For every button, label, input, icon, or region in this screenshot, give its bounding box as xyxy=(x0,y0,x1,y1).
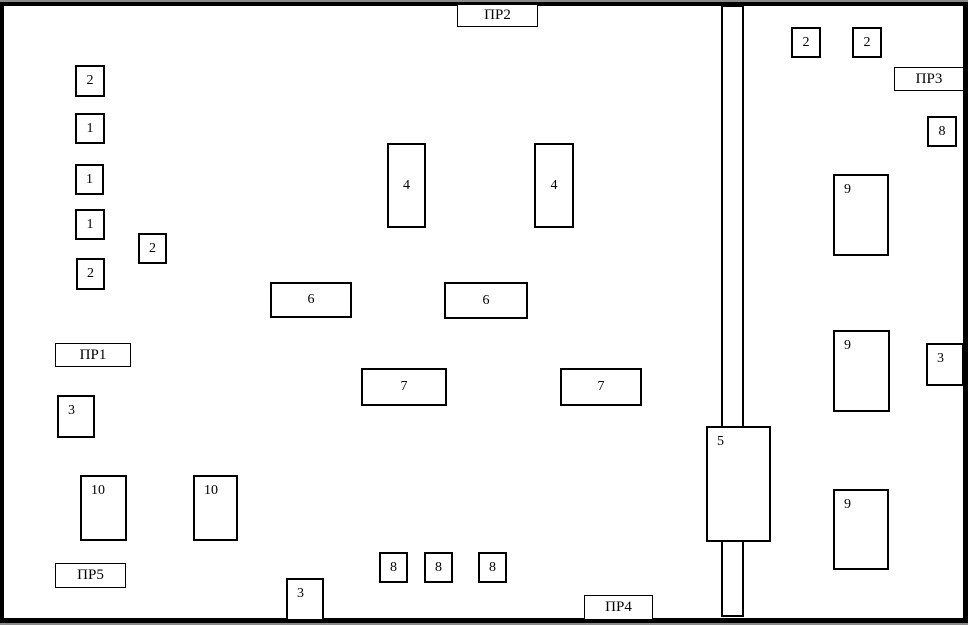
shaft-wall-left-lower xyxy=(721,542,723,617)
shaft-bottom-cap xyxy=(721,615,744,617)
plan-item-box-1: 1 xyxy=(75,164,104,195)
plan-item-box-8: 8 xyxy=(379,552,408,583)
outer-wall-right xyxy=(963,2,968,623)
plan-item-box-8: 8 xyxy=(424,552,453,583)
plan-item-box-2: 2 xyxy=(76,258,105,290)
plan-item-box-2: 2 xyxy=(791,27,821,58)
plan-item-box-3: 3 xyxy=(926,343,964,386)
plan-item-box-9: 9 xyxy=(833,174,889,256)
shaft-wall-left-upper xyxy=(721,6,723,426)
outer-wall-left xyxy=(0,2,4,623)
floor-plan: 21112244228999366773101038885ПР1ПР2ПР3ПР… xyxy=(0,0,968,625)
plan-item-box-10: 10 xyxy=(193,475,238,541)
plan-item-box-4: 4 xyxy=(387,143,426,228)
outer-wall-top-shadow xyxy=(0,0,968,2)
plan-item-box-1: 1 xyxy=(75,209,105,240)
plan-item-box-4: 4 xyxy=(534,143,574,228)
plan-item-box-5: 5 xyxy=(706,426,771,542)
junction-label-pr3: ПР3 xyxy=(894,67,964,91)
plan-item-box-8: 8 xyxy=(478,552,507,583)
plan-item-box-9: 9 xyxy=(833,489,889,570)
plan-item-box-10: 10 xyxy=(80,475,127,541)
plan-item-box-1: 1 xyxy=(75,113,105,144)
plan-item-box-2: 2 xyxy=(138,233,167,264)
shaft-wall-right-lower xyxy=(742,542,744,617)
plan-item-box-6: 6 xyxy=(270,282,352,318)
plan-item-box-3: 3 xyxy=(286,578,324,621)
shaft-wall-right-upper xyxy=(742,6,744,426)
plan-item-box-7: 7 xyxy=(560,368,642,406)
plan-item-box-2: 2 xyxy=(75,65,105,97)
plan-item-box-6: 6 xyxy=(444,282,528,319)
plan-item-box-8: 8 xyxy=(927,116,957,147)
shaft-top-cap xyxy=(721,2,744,7)
junction-label-pr4: ПР4 xyxy=(584,595,653,620)
plan-item-box-2: 2 xyxy=(852,27,882,58)
junction-label-pr2: ПР2 xyxy=(457,4,538,27)
junction-label-pr1: ПР1 xyxy=(55,343,131,367)
junction-label-pr5: ПР5 xyxy=(55,563,126,588)
plan-item-box-3: 3 xyxy=(57,395,95,438)
plan-item-box-7: 7 xyxy=(361,368,447,406)
plan-item-box-9: 9 xyxy=(833,330,890,412)
